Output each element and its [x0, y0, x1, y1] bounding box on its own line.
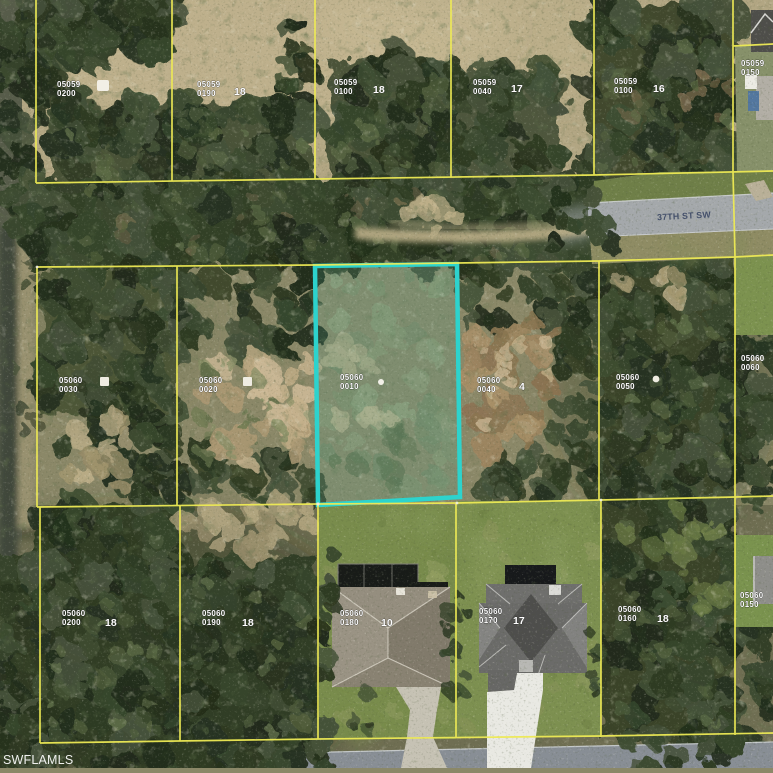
svg-text:05060: 05060 [479, 607, 503, 616]
svg-text:18: 18 [657, 613, 669, 625]
svg-text:17: 17 [513, 615, 525, 627]
svg-text:18: 18 [234, 86, 246, 98]
svg-text:10: 10 [381, 617, 393, 629]
svg-text:0200: 0200 [62, 618, 81, 627]
svg-text:05060: 05060 [618, 605, 642, 614]
svg-text:16: 16 [653, 83, 665, 95]
svg-text:0030: 0030 [59, 385, 78, 394]
svg-text:18: 18 [105, 617, 117, 629]
svg-text:0150: 0150 [741, 68, 760, 77]
svg-text:05059: 05059 [741, 59, 765, 68]
svg-text:0190: 0190 [202, 618, 221, 627]
svg-text:0160: 0160 [618, 614, 637, 623]
svg-text:05059: 05059 [197, 80, 221, 89]
svg-text:0190: 0190 [197, 89, 216, 98]
svg-text:0100: 0100 [614, 86, 633, 95]
svg-text:18: 18 [242, 617, 254, 629]
svg-text:0060: 0060 [741, 363, 760, 372]
svg-text:0150: 0150 [740, 600, 759, 609]
svg-text:18: 18 [373, 84, 385, 96]
svg-text:0020: 0020 [199, 385, 218, 394]
svg-text:0100: 0100 [334, 87, 353, 96]
svg-text:0010: 0010 [340, 382, 359, 391]
svg-text:05060: 05060 [340, 373, 364, 382]
svg-text:0040: 0040 [473, 87, 492, 96]
svg-text:0170: 0170 [479, 616, 498, 625]
svg-text:05060: 05060 [199, 376, 223, 385]
svg-text:05060: 05060 [62, 609, 86, 618]
svg-text:0180: 0180 [340, 618, 359, 627]
svg-text:4: 4 [519, 381, 525, 393]
svg-text:05059: 05059 [334, 78, 358, 87]
svg-text:05059: 05059 [473, 78, 497, 87]
svg-text:05060: 05060 [59, 376, 83, 385]
svg-text:05060: 05060 [616, 373, 640, 382]
svg-text:05060: 05060 [202, 609, 226, 618]
svg-text:SWFLAMLS: SWFLAMLS [3, 753, 73, 767]
svg-text:0200: 0200 [57, 89, 76, 98]
svg-text:05060: 05060 [741, 354, 765, 363]
svg-text:05059: 05059 [614, 77, 638, 86]
svg-text:05060: 05060 [740, 591, 764, 600]
svg-text:17: 17 [511, 83, 523, 95]
svg-text:05059: 05059 [57, 80, 81, 89]
svg-text:05060: 05060 [477, 376, 501, 385]
svg-text:0050: 0050 [616, 382, 635, 391]
svg-text:05060: 05060 [340, 609, 364, 618]
svg-text:0040: 0040 [477, 385, 496, 394]
